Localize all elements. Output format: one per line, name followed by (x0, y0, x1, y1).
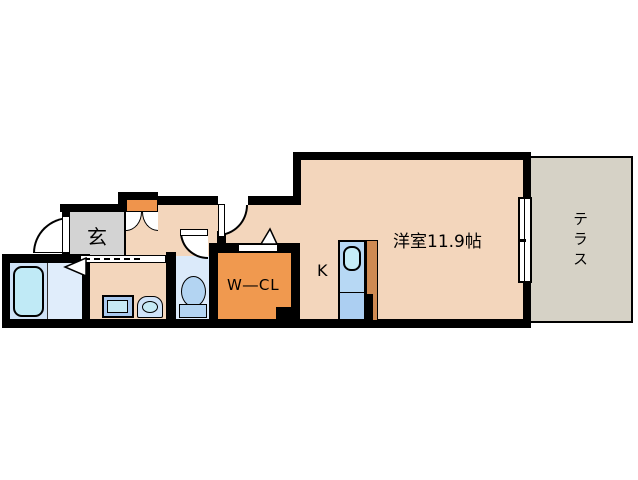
wall-main-top (293, 152, 531, 160)
washing-machine (102, 295, 134, 318)
wall-wcl-notch (276, 307, 300, 328)
entrance-label: 玄 (87, 221, 107, 250)
floorplan: 洋室11.9帖 K 玄 W―CL テラス (0, 0, 638, 480)
terrace-label: テラス (570, 211, 591, 271)
wall-hall-top-east (248, 196, 301, 205)
toilet-door-leaf (180, 229, 208, 236)
hall-door-leaf (218, 204, 225, 237)
wall-toilet-right (209, 250, 218, 328)
main-room-label: 洋室11.9帖 (393, 227, 482, 252)
wcl-folding-door-icon (258, 226, 280, 247)
shoe-cabinet (126, 199, 158, 212)
walk-in-closet-label: W―CL (227, 276, 280, 294)
bathtub (13, 266, 44, 317)
sliding-door-dashes (84, 258, 140, 260)
washroom-sliding-door (80, 255, 166, 263)
wall-toilet-left (166, 252, 176, 328)
terrace-window-tick (518, 239, 526, 242)
bathroom-folding-door-icon (62, 255, 90, 279)
kitchen-wall-stub (364, 294, 373, 321)
toilet-tank (179, 304, 207, 318)
wall-outer-left (2, 254, 10, 328)
entrance-door-leaf (62, 216, 70, 253)
kitchen-sink (343, 246, 361, 271)
washing-machine-lid (107, 300, 128, 313)
kitchen-label: K (317, 261, 328, 280)
kitchen-counter (338, 240, 366, 321)
wall-hall-top-west (158, 196, 218, 205)
kitchen-counter-lower (340, 292, 364, 319)
wall-bottom (2, 319, 531, 328)
terrace-window (518, 197, 532, 283)
vanity-sink (137, 296, 163, 318)
vanity-basin (142, 301, 158, 313)
toilet-bowl (181, 276, 206, 307)
